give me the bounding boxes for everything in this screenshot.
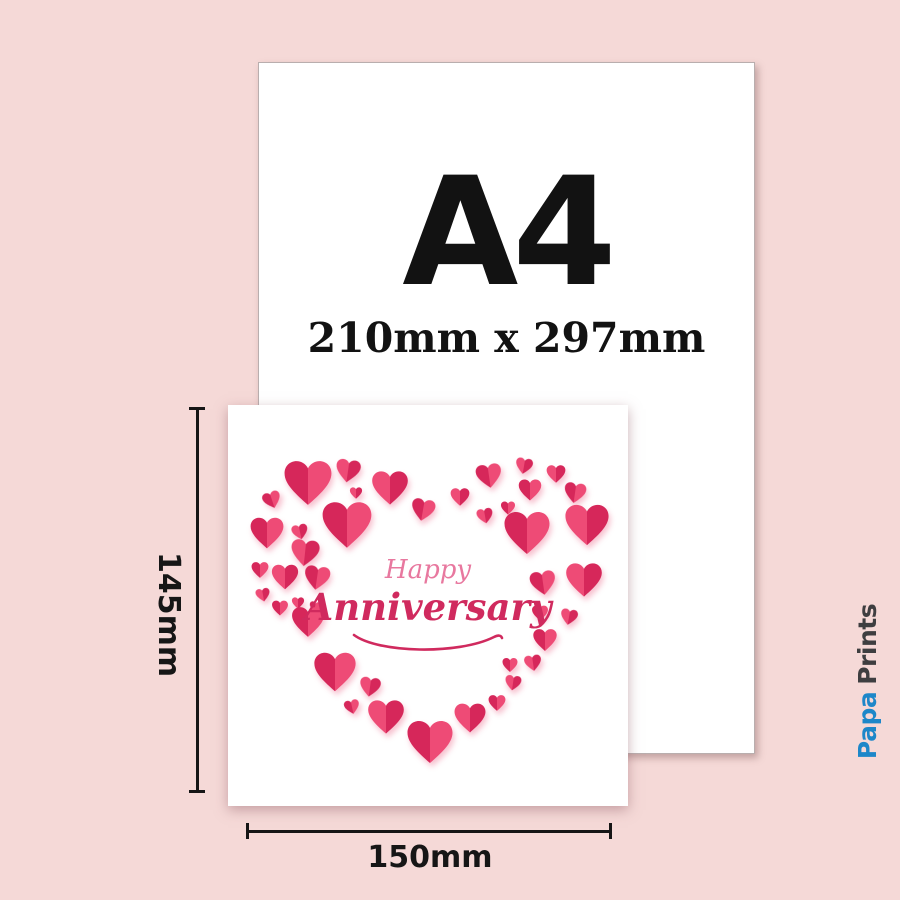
paper-heart xyxy=(502,657,518,672)
dimension-line xyxy=(246,830,612,833)
paper-heart xyxy=(409,496,438,523)
paper-heart xyxy=(503,510,551,555)
paper-heart xyxy=(371,470,409,506)
paper-heart xyxy=(564,503,610,546)
paper-heart xyxy=(313,651,357,692)
greeting-swash-flourish xyxy=(348,629,508,655)
greeting-happy: Happy xyxy=(228,555,628,585)
paper-heart xyxy=(450,487,470,506)
dimension-line xyxy=(196,407,199,793)
dimension-cap xyxy=(609,823,612,839)
greeting-anniversary: Anniversary xyxy=(228,587,628,627)
paper-heart xyxy=(546,465,566,484)
dimension-cap xyxy=(189,790,205,793)
height-dimension-label: 145mm xyxy=(152,552,184,652)
paper-heart xyxy=(523,653,543,672)
paper-heart xyxy=(333,457,362,485)
paper-heart xyxy=(260,489,284,512)
anniversary-card: Happy Anniversary xyxy=(228,405,628,806)
a4-size-label: A4 xyxy=(259,158,754,308)
papa-prints-logo: Papa Prints xyxy=(847,610,887,760)
paper-heart xyxy=(454,702,487,733)
paper-heart xyxy=(475,507,495,526)
paper-heart xyxy=(518,479,542,502)
logo-word-papa: Papa xyxy=(853,692,882,759)
paper-heart xyxy=(350,487,363,499)
paper-heart xyxy=(562,481,588,506)
logo-word-prints: Prints xyxy=(853,604,882,685)
width-dimension-line xyxy=(246,823,612,839)
paper-heart xyxy=(514,456,535,476)
a4-dimensions-text: 210mm x 297mm xyxy=(259,315,754,361)
paper-heart xyxy=(321,500,373,549)
paper-heart xyxy=(504,674,523,692)
paper-heart xyxy=(488,694,506,711)
paper-heart xyxy=(358,675,383,699)
paper-heart xyxy=(343,698,362,716)
width-dimension-label: 150mm xyxy=(330,841,530,875)
paper-heart xyxy=(367,699,405,735)
height-dimension-line xyxy=(189,407,205,793)
paper-heart xyxy=(474,462,504,491)
paper-heart xyxy=(250,516,285,549)
page-background: A4 210mm x 297mm Happy Anniversary 145mm… xyxy=(0,0,900,900)
paper-heart xyxy=(406,719,454,764)
greeting-text-block: Happy Anniversary xyxy=(228,555,628,655)
